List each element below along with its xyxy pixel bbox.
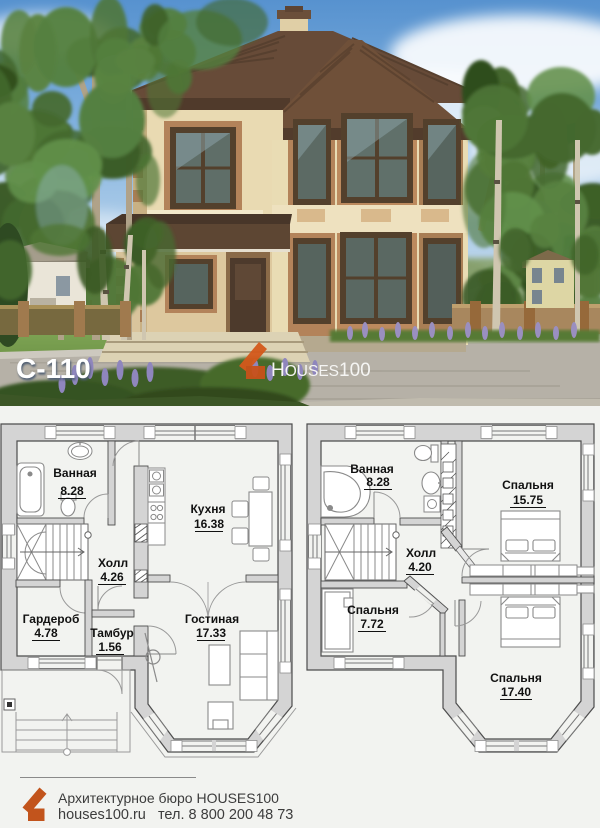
svg-text:16.38: 16.38 <box>194 517 224 531</box>
svg-text:4.26: 4.26 <box>100 570 124 584</box>
svg-text:Холл: Холл <box>98 556 128 570</box>
svg-text:17.40: 17.40 <box>501 685 531 699</box>
svg-text:С-110: С-110 <box>16 353 91 384</box>
svg-text:7.72: 7.72 <box>360 617 384 631</box>
svg-text:Кухня: Кухня <box>190 502 225 516</box>
svg-text:8.28: 8.28 <box>60 484 84 498</box>
svg-text:4.20: 4.20 <box>408 560 432 574</box>
svg-text:Спальня: Спальня <box>490 671 542 685</box>
svg-text:Ванная: Ванная <box>350 462 394 476</box>
svg-text:Тамбур: Тамбур <box>90 626 134 640</box>
svg-text:Холл: Холл <box>406 546 436 560</box>
svg-text:Спальня: Спальня <box>502 478 554 492</box>
svg-text:17.33: 17.33 <box>196 626 226 640</box>
svg-text:Гардероб: Гардероб <box>23 612 80 626</box>
svg-text:Ванная: Ванная <box>53 466 97 480</box>
svg-text:15.75: 15.75 <box>513 493 543 507</box>
svg-text:1.56: 1.56 <box>98 640 122 654</box>
svg-text:Гостиная: Гостиная <box>185 612 239 626</box>
svg-text:Спальня: Спальня <box>347 603 399 617</box>
svg-text:4.78: 4.78 <box>34 626 58 640</box>
svg-text:HOUSES100: HOUSES100 <box>271 360 371 381</box>
svg-text:8.28: 8.28 <box>366 475 390 489</box>
